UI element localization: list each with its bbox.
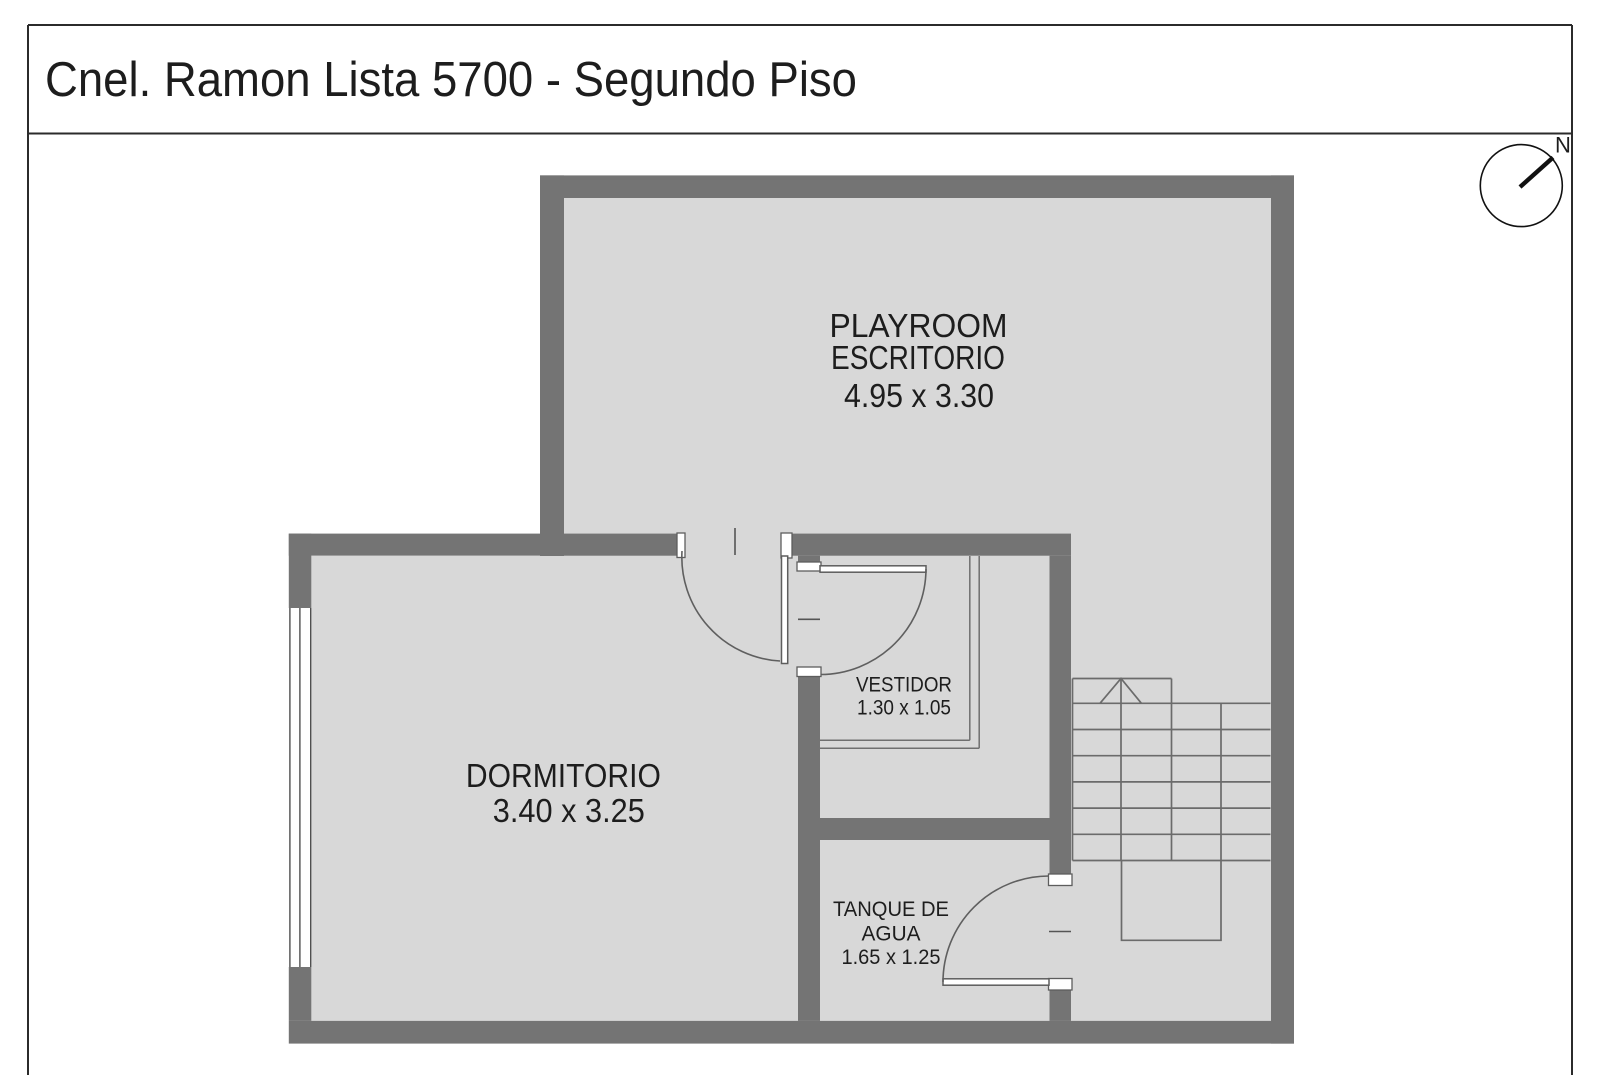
svg-text:3.40 x 3.25: 3.40 x 3.25 xyxy=(493,792,645,829)
svg-text:1.65 x 1.25: 1.65 x 1.25 xyxy=(842,946,941,969)
svg-text:DORMITORIO: DORMITORIO xyxy=(466,757,661,794)
svg-text:4.95 x 3.30: 4.95 x 3.30 xyxy=(844,377,994,414)
svg-text:ESCRITORIO: ESCRITORIO xyxy=(831,339,1005,376)
svg-text:N: N xyxy=(1555,132,1571,157)
svg-text:VESTIDOR: VESTIDOR xyxy=(856,674,952,697)
svg-text:AGUA: AGUA xyxy=(862,923,921,946)
svg-text:TANQUE DE: TANQUE DE xyxy=(833,898,949,921)
svg-text:1.30 x 1.05: 1.30 x 1.05 xyxy=(857,697,951,720)
svg-text:Cnel. Ramon Lista 5700 - Segun: Cnel. Ramon Lista 5700 - Segundo Piso xyxy=(45,53,857,107)
